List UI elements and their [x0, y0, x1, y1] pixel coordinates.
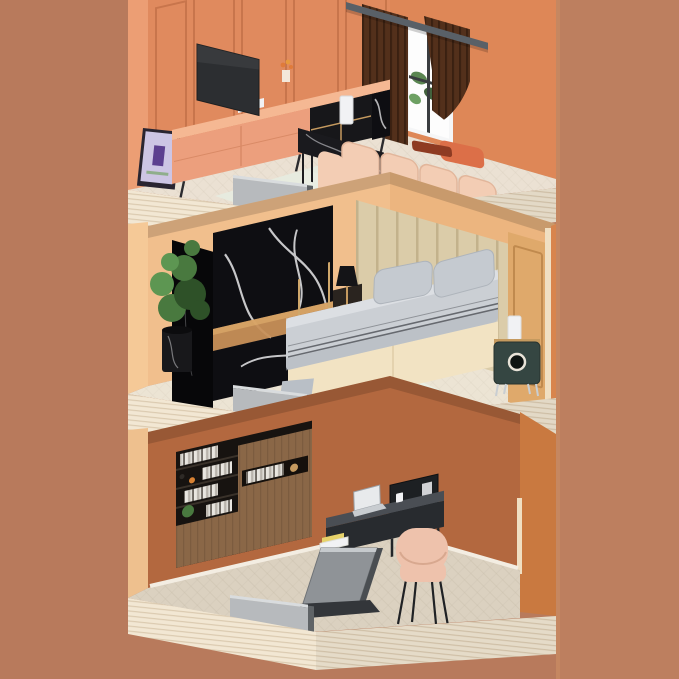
- outer-wall-strip-bot: [128, 428, 148, 598]
- corner-trim: [545, 228, 551, 402]
- vase: [282, 70, 290, 82]
- corner-trim: [517, 498, 522, 574]
- pot-rim: [162, 326, 192, 334]
- cutaway-render: [0, 0, 679, 679]
- scene: [0, 0, 679, 679]
- humidifier: [340, 96, 353, 124]
- plant-pot: [162, 326, 192, 372]
- column-edge-highlight: [556, 0, 560, 679]
- outer-wall-strip-mid: [128, 222, 148, 394]
- poster-figure: [152, 145, 165, 166]
- flower: [286, 60, 291, 65]
- flower: [281, 63, 286, 68]
- walnut-cabinet-doors: [238, 429, 312, 554]
- humidifier-body: [340, 96, 353, 124]
- pot-body: [162, 328, 192, 372]
- ring-handle: [509, 354, 525, 370]
- foreground-column-right: [556, 0, 679, 679]
- office-wall-outer-right: [520, 412, 556, 616]
- panel-highlight: [320, 548, 377, 552]
- cup: [396, 492, 403, 503]
- flower: [289, 65, 293, 69]
- outer-wall-strip-right: [551, 224, 556, 402]
- cylinder-lamp: [508, 316, 521, 340]
